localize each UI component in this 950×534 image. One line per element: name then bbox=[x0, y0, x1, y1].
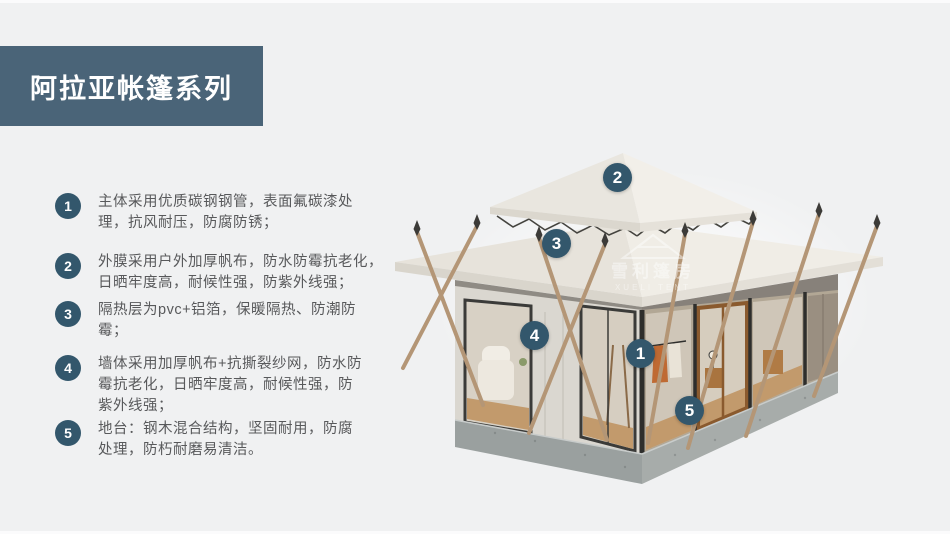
watermark-en-text: XUELI TENT bbox=[615, 283, 691, 292]
feature-text: 外膜采用户外加厚帆布，防水防霉抗老化， 日晒牢度高，耐候性强，防紫外线强； bbox=[98, 252, 398, 294]
tent-marker-4: 4 bbox=[520, 321, 549, 350]
feature-list: 1 主体采用优质碳钢钢管，表面氟碳漆处 理，抗风耐压，防腐防锈； 2 外膜采用户… bbox=[55, 192, 415, 461]
watermark-cn-text: 雪利篷房 bbox=[611, 261, 695, 281]
feature-number-badge: 1 bbox=[55, 193, 81, 219]
tent-marker-5: 5 bbox=[675, 396, 704, 425]
feature-item-5: 5 地台：钢木混合结构，坚固耐用，防腐 处理，防朽耐磨易清洁。 bbox=[55, 419, 415, 461]
feature-item-4: 4 墙体采用加厚帆布+抗撕裂纱网，防水防 霉抗老化，日晒牢度高，耐候性强，防 紫… bbox=[55, 354, 415, 417]
page: 阿拉亚帐篷系列 1 主体采用优质碳钢钢管，表面氟碳漆处 理，抗风耐压，防腐防锈；… bbox=[0, 0, 950, 534]
feature-number-badge: 2 bbox=[55, 253, 81, 279]
title-banner: 阿拉亚帐篷系列 bbox=[0, 46, 263, 126]
feature-item-2: 2 外膜采用户外加厚帆布，防水防霉抗老化， 日晒牢度高，耐候性强，防紫外线强； bbox=[55, 252, 415, 294]
tent-marker-2: 2 bbox=[603, 163, 632, 192]
top-edge-line bbox=[0, 0, 950, 3]
feature-text: 隔热层为pvc+铝箔，保暖隔热、防潮防 霉； bbox=[98, 300, 398, 342]
feature-item-3: 3 隔热层为pvc+铝箔，保暖隔热、防潮防 霉； bbox=[55, 300, 415, 342]
feature-text: 主体采用优质碳钢钢管，表面氟碳漆处 理，抗风耐压，防腐防锈； bbox=[98, 192, 398, 234]
feature-number-badge: 3 bbox=[55, 301, 81, 327]
page-title: 阿拉亚帐篷系列 bbox=[30, 67, 233, 106]
feature-number-badge: 5 bbox=[55, 420, 81, 446]
tent-marker-1: 1 bbox=[626, 339, 655, 368]
feature-text: 墙体采用加厚帆布+抗撕裂纱网，防水防 霉抗老化，日晒牢度高，耐候性强，防 紫外线… bbox=[98, 354, 398, 417]
tent-illustration: 雪利篷房 XUELI TENT bbox=[385, 140, 945, 500]
tent-marker-3: 3 bbox=[542, 229, 571, 258]
feature-item-1: 1 主体采用优质碳钢钢管，表面氟碳漆处 理，抗风耐压，防腐防锈； bbox=[55, 192, 415, 234]
tent-photo: 雪利篷房 XUELI TENT 2 3 4 1 5 bbox=[385, 140, 945, 500]
feature-number-badge: 4 bbox=[55, 355, 81, 381]
feature-text: 地台：钢木混合结构，坚固耐用，防腐 处理，防朽耐磨易清洁。 bbox=[98, 419, 398, 461]
